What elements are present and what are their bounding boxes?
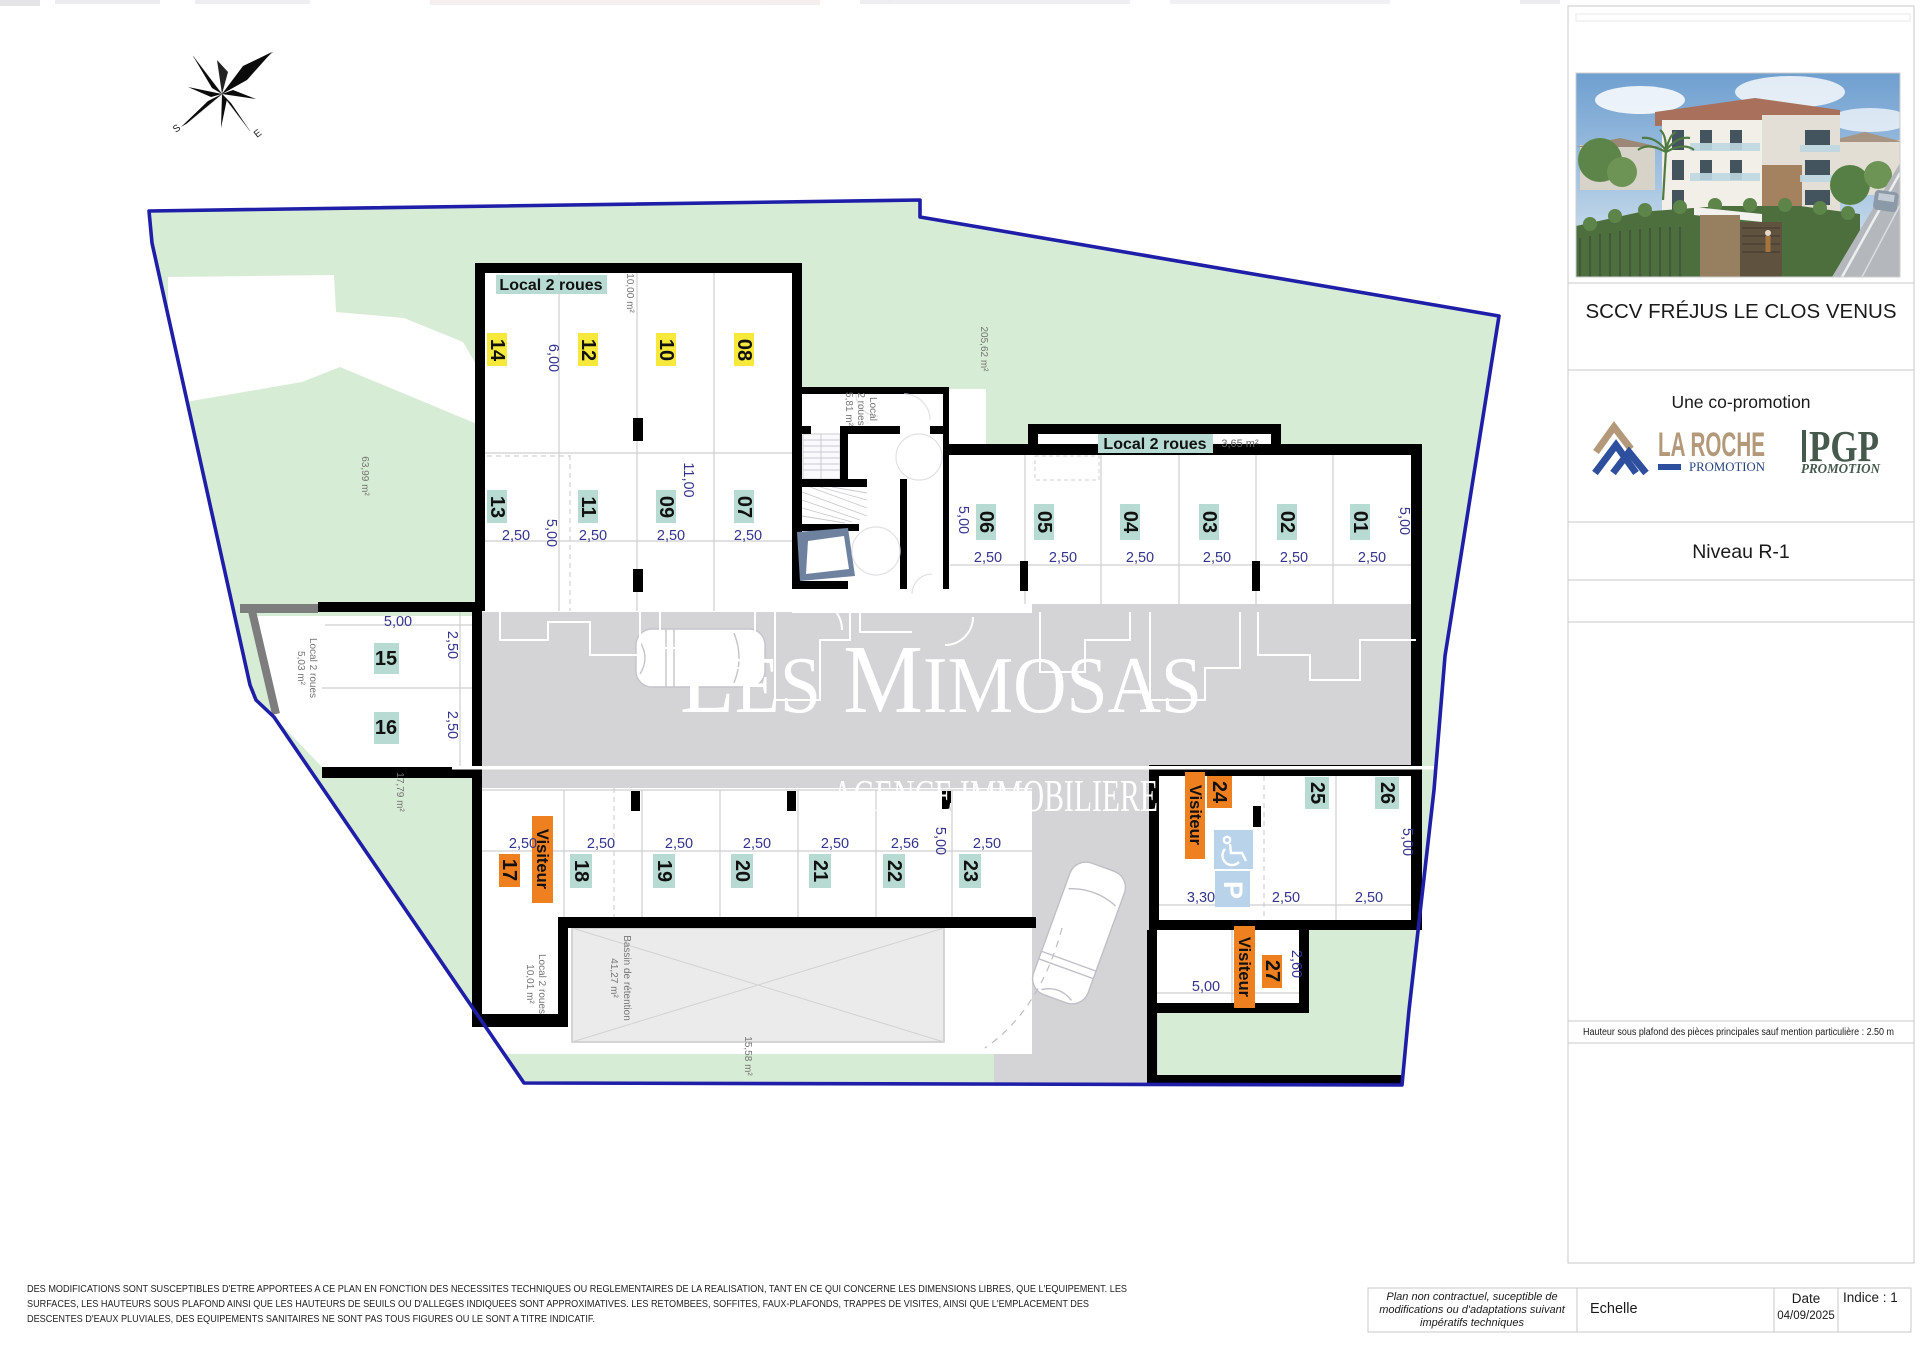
svg-text:5,00: 5,00 [1396, 507, 1412, 535]
svg-text:02: 02 [1276, 511, 1298, 533]
svg-text:3,30: 3,30 [1187, 890, 1215, 906]
svg-text:3,65 m²: 3,65 m² [1221, 438, 1259, 450]
svg-text:5,03 m²: 5,03 m² [295, 651, 306, 686]
svg-text:14: 14 [486, 339, 508, 362]
svg-text:2 roues: 2 roues [855, 392, 866, 425]
svg-text:2,50: 2,50 [587, 836, 615, 852]
svg-text:SURFACES, LES HAUTEURS SOUS PL: SURFACES, LES HAUTEURS SOUS PLAFOND AINS… [27, 1299, 1089, 1310]
svg-text:5,00: 5,00 [932, 827, 948, 855]
svg-text:20: 20 [731, 860, 753, 882]
svg-text:2,50: 2,50 [974, 550, 1002, 566]
svg-text:15,58 m²: 15,58 m² [742, 1036, 753, 1076]
svg-text:6,00: 6,00 [545, 344, 561, 372]
svg-text:2,50: 2,50 [821, 836, 849, 852]
svg-text:10,00 m²: 10,00 m² [624, 273, 635, 313]
svg-text:17,79 m²: 17,79 m² [394, 772, 405, 812]
svg-text:10: 10 [655, 339, 677, 361]
svg-text:2,50: 2,50 [973, 836, 1001, 852]
svg-text:63,99 m²: 63,99 m² [359, 456, 370, 496]
svg-text:Local 2 roues: Local 2 roues [536, 954, 547, 1014]
svg-text:15: 15 [375, 648, 397, 670]
svg-text:04: 04 [1119, 511, 1141, 534]
svg-text:25: 25 [1306, 782, 1328, 804]
svg-text:17: 17 [498, 859, 520, 881]
svg-text:06: 06 [975, 511, 997, 533]
svg-text:2,50: 2,50 [1049, 550, 1077, 566]
svg-text:2,50: 2,50 [1272, 890, 1300, 906]
svg-text:2,50: 2,50 [1355, 890, 1383, 906]
svg-text:5,81 m²: 5,81 m² [843, 392, 854, 427]
svg-text:Local 2 roues: Local 2 roues [307, 638, 318, 698]
svg-text:2,50: 2,50 [1126, 550, 1154, 566]
svg-text:2,50: 2,50 [665, 836, 693, 852]
svg-text:Indice : 1: Indice : 1 [1843, 1290, 1898, 1305]
svg-text:LES MIMOSAS: LES MIMOSAS [680, 626, 1202, 733]
svg-text:16: 16 [375, 717, 397, 739]
svg-text:27: 27 [1261, 960, 1283, 982]
svg-text:Local 2 roues: Local 2 roues [1103, 436, 1206, 453]
svg-text:Local 2 roues: Local 2 roues [499, 277, 602, 294]
svg-text:205,62 m²: 205,62 m² [978, 326, 989, 372]
svg-text:PROMOTION: PROMOTION [1689, 459, 1766, 474]
svg-text:5,00: 5,00 [384, 614, 412, 630]
svg-text:Une co-promotion: Une co-promotion [1671, 392, 1810, 412]
svg-text:Echelle: Echelle [1590, 1301, 1638, 1317]
svg-text:21: 21 [809, 860, 831, 882]
svg-text:modifications ou d'adaptations: modifications ou d'adaptations suivant [1379, 1304, 1565, 1316]
svg-text:2,56: 2,56 [891, 836, 919, 852]
svg-text:2,50: 2,50 [444, 631, 460, 659]
svg-text:2,50: 2,50 [579, 528, 607, 544]
svg-text:AGENCE IMMOBILIERE: AGENCE IMMOBILIERE [832, 770, 1158, 821]
svg-text:Bassin de rétention: Bassin de rétention [621, 935, 632, 1021]
svg-text:04/09/2025: 04/09/2025 [1777, 1310, 1835, 1322]
svg-text:12: 12 [577, 339, 599, 361]
svg-text:11,00: 11,00 [680, 462, 696, 497]
svg-text:26: 26 [1376, 782, 1398, 804]
svg-text:5,00: 5,00 [543, 519, 559, 547]
svg-text:Local: Local [867, 397, 878, 421]
svg-text:5,00: 5,00 [955, 506, 971, 534]
svg-text:2,50: 2,50 [444, 711, 460, 739]
svg-text:Visiteur: Visiteur [1235, 937, 1253, 998]
svg-text:impératifs techniques: impératifs techniques [1420, 1317, 1524, 1329]
svg-text:P: P [1218, 881, 1248, 899]
svg-text:Visiteur: Visiteur [1186, 785, 1204, 846]
svg-text:2,50: 2,50 [734, 528, 762, 544]
svg-text:03: 03 [1198, 511, 1220, 533]
svg-text:07: 07 [733, 496, 755, 518]
svg-text:5,00: 5,00 [1399, 828, 1415, 856]
svg-text:DESCENTES D'EAUX PLUVIALES, DE: DESCENTES D'EAUX PLUVIALES, DES EQUIPEME… [27, 1314, 595, 1325]
svg-text:10,01 m²: 10,01 m² [524, 964, 535, 1004]
svg-text:2,50: 2,50 [1280, 550, 1308, 566]
svg-text:2,50: 2,50 [509, 836, 537, 852]
svg-text:13: 13 [486, 496, 508, 518]
svg-text:Niveau R-1: Niveau R-1 [1692, 541, 1790, 563]
svg-text:24: 24 [1208, 781, 1230, 804]
svg-text:SCCV FRÉJUS LE CLOS VENUS: SCCV FRÉJUS LE CLOS VENUS [1586, 300, 1897, 323]
svg-text:2,50: 2,50 [1358, 550, 1386, 566]
svg-text:18: 18 [570, 860, 592, 882]
svg-text:2,60: 2,60 [1288, 950, 1304, 978]
svg-text:5,00: 5,00 [1192, 979, 1220, 995]
svg-text:01: 01 [1349, 511, 1371, 533]
svg-text:2,50: 2,50 [502, 528, 530, 544]
svg-text:23: 23 [959, 860, 981, 882]
svg-text:Plan non contractuel, suceptib: Plan non contractuel, suceptible de [1386, 1291, 1557, 1303]
svg-text:11: 11 [577, 496, 599, 517]
svg-text:05: 05 [1033, 511, 1055, 533]
svg-text:09: 09 [655, 496, 677, 518]
svg-text:Hauteur sous plafond des pièce: Hauteur sous plafond des pièces principa… [1583, 1027, 1894, 1038]
svg-text:Date: Date [1792, 1291, 1821, 1306]
svg-text:PROMOTION: PROMOTION [1801, 461, 1881, 476]
svg-text:08: 08 [733, 339, 755, 361]
svg-text:19: 19 [653, 860, 675, 882]
svg-text:DES MODIFICATIONS SONT SUSCEPT: DES MODIFICATIONS SONT SUSCEPTIBLES D'ET… [27, 1284, 1127, 1295]
svg-text:2,50: 2,50 [657, 528, 685, 544]
svg-text:2,50: 2,50 [1203, 550, 1231, 566]
svg-text:22: 22 [883, 860, 905, 882]
svg-text:2,50: 2,50 [743, 836, 771, 852]
svg-text:41,27 m²: 41,27 m² [608, 958, 619, 998]
